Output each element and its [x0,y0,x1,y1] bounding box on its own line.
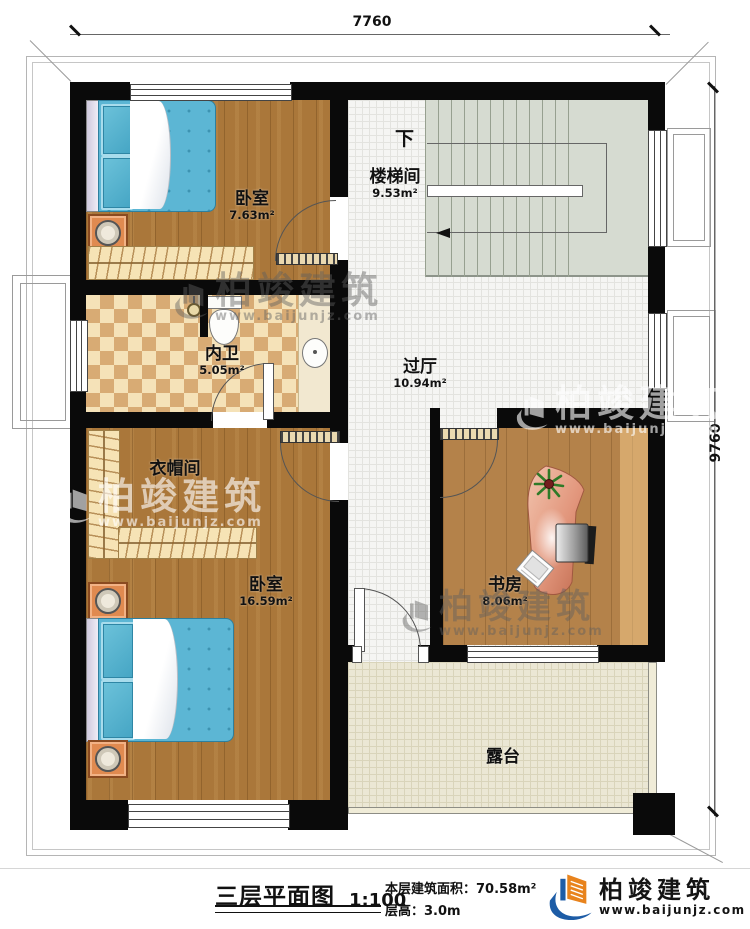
brand-block: 柏竣建筑 www.baijunjz.com [543,870,746,924]
brand-logo-icon [543,870,595,924]
wall [648,387,665,662]
door-leaf-bedroom1 [276,253,338,265]
room-area: 7.63m² [202,209,302,222]
computer-monitor-icon [556,524,588,562]
wall [288,800,348,830]
wall [70,390,86,800]
floor-height-text: 层高：3.0m [385,900,461,919]
wall [430,408,440,428]
toilet-tank [206,296,242,309]
title-underline [215,905,381,913]
bay-outline-left-inner [20,283,66,421]
window [128,804,290,828]
cloakroom-wardrobe-horizontal [118,527,257,559]
window [70,320,88,392]
door-leaf-study [440,428,499,440]
room-name: 露台 [453,748,553,767]
room-label-bedroom2: 卧室 16.59m² [216,576,316,608]
lamp-icon [95,220,121,246]
room-area: 8.06m² [455,595,555,608]
room-area: 9.53m² [345,187,445,200]
lamp-icon [95,746,121,772]
window [130,84,292,101]
window [648,313,667,389]
column [633,793,675,835]
pillow [101,622,135,680]
terrace-floor [348,662,648,807]
terrace-parapet-right [648,662,657,813]
bed-blanket [133,619,178,739]
stair-down-label: 下 [395,124,414,151]
floorplan-canvas: 7760 9760 下 [0,0,750,929]
room-name: 内卫 [172,345,272,364]
wall [70,280,347,295]
bay-outline-hall-inner [673,316,710,416]
wall [648,245,665,313]
window [467,646,599,663]
door-frame [418,646,429,663]
bed-blanket [130,101,171,209]
room-area: 16.59m² [216,595,316,608]
room-name: 卧室 [216,576,316,595]
room-name: 楼梯间 [345,168,445,187]
pillow [101,156,133,210]
wall [597,645,665,662]
room-label-stairwell: 楼梯间 9.53m² [345,168,445,200]
room-area: 5.05m² [172,364,272,377]
wall [430,645,467,662]
shower-head-icon [187,303,201,317]
room-area: 10.94m² [370,377,470,390]
bay-outline-stair-inner [673,134,705,241]
wall [330,500,348,800]
terrace-parapet-bottom [348,807,657,814]
wall [70,82,130,100]
room-label-cloakroom: 衣帽间 [125,460,225,479]
brand-url: www.baijunjz.com [599,903,746,917]
brand-name: 柏竣建筑 [599,877,746,903]
room-label-bathroom: 内卫 5.05m² [172,345,272,377]
wall-stub [200,295,208,337]
dimension-line-top [70,34,670,35]
door-frame [352,646,362,663]
wall [648,100,665,130]
room-name: 卧室 [202,190,302,209]
wall [70,800,128,830]
stair-direction-arrow [436,228,450,238]
footer-divider [0,868,750,869]
room-label-hall: 过厅 10.94m² [370,358,470,390]
dimension-right-value: 9760 [708,421,724,465]
pillow [101,104,133,156]
wall [290,82,665,100]
cloakroom-wardrobe-vertical [88,430,120,559]
window [648,130,667,247]
dimension-top-value: 7760 [322,14,422,30]
pillow [101,680,135,740]
room-label-terrace: 露台 [453,748,553,767]
door-leaf-bedroom2 [280,431,340,443]
room-label-study: 书房 8.06m² [455,576,555,608]
wall [86,412,213,428]
stair-handrail [427,185,583,197]
room-name: 过厅 [370,358,470,377]
door-leaf-terrace [354,588,365,652]
wall [497,408,648,428]
lamp-icon [95,588,121,614]
room-label-bedroom1: 卧室 7.63m² [202,190,302,222]
room-name: 衣帽间 [125,460,225,479]
building-area-text: 本层建筑面积：70.58m² [385,878,536,897]
wardrobe [88,246,254,280]
wall [267,412,330,428]
sink-drain [313,350,317,354]
room-name: 书房 [455,576,555,595]
